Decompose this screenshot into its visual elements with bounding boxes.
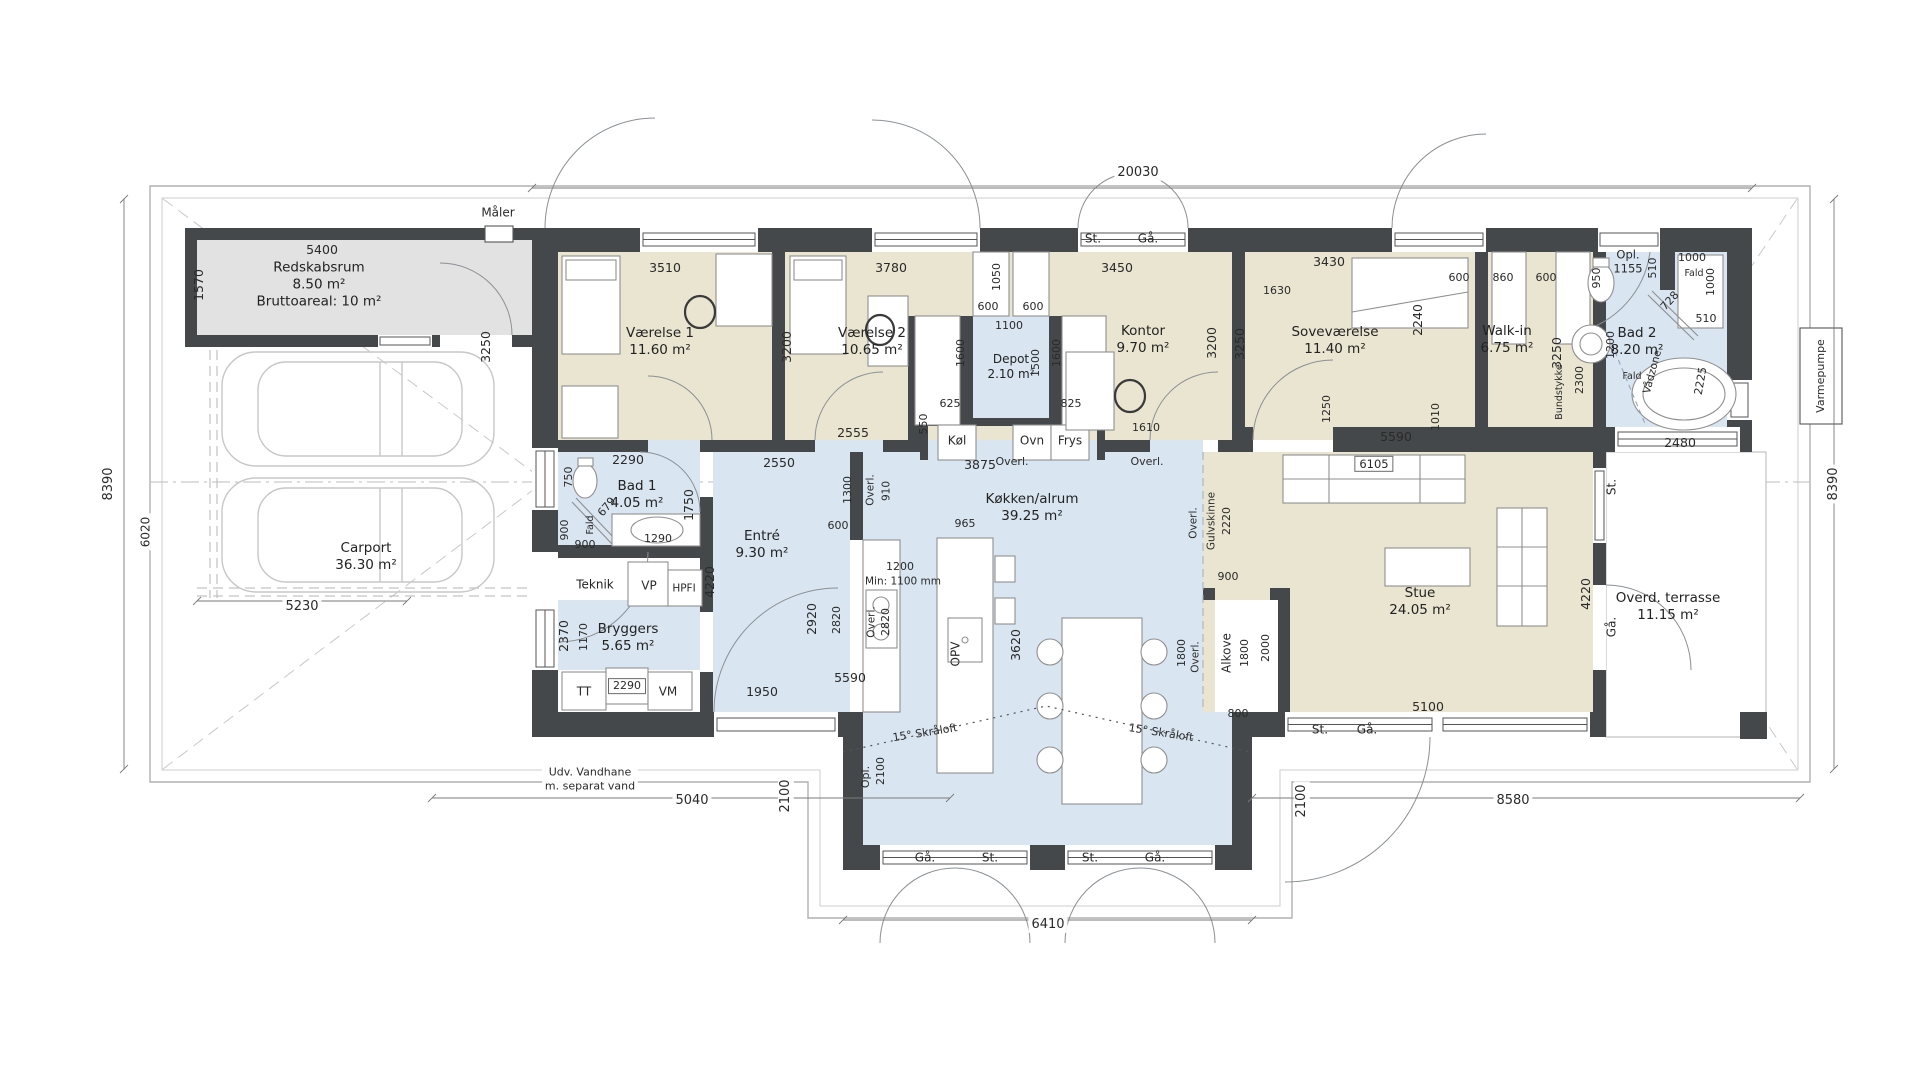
label-fald: Fald: [585, 515, 597, 534]
label-1170: 1170: [577, 623, 591, 651]
label-2220: 2220: [1220, 507, 1234, 535]
label-900: 900: [558, 520, 572, 541]
label-hpfi: HPFI: [672, 582, 695, 595]
label-825: 825: [1061, 397, 1082, 411]
label-overd-terrasse: Overd. terrasse 11.15 m²: [1616, 590, 1721, 624]
label-625: 625: [940, 397, 961, 411]
label-soveværelse: Soveværelse 11.40 m²: [1291, 324, 1378, 358]
label-2300: 2300: [1573, 366, 1587, 394]
label-3780: 3780: [875, 260, 907, 276]
label-5590: 5590: [1380, 429, 1412, 445]
label-600: 600: [978, 300, 999, 314]
label-950: 950: [1590, 268, 1604, 289]
label-opv: OPV: [949, 642, 964, 667]
label-fald: Fald: [1622, 371, 1641, 383]
label-overl-: Overl.: [995, 455, 1028, 469]
label-opl-: Opl. 1155: [1613, 248, 1642, 277]
label-1800: 1800: [1175, 639, 1189, 667]
label-opl-: Opl.: [859, 766, 873, 788]
label-3250: 3250: [1232, 328, 1248, 360]
label-depot: Depot 2.10 m²: [987, 352, 1034, 382]
label-4220: 4220: [702, 566, 718, 598]
label-1200: 1200: [886, 560, 914, 574]
label-redskabsrum: Redskabsrum 8.50 m² Bruttoareal: 10 m²: [257, 260, 382, 311]
label-1050: 1050: [990, 263, 1004, 291]
label-frys: Frys: [1058, 434, 1082, 449]
label-1200: 1200: [1604, 331, 1618, 359]
label-600: 600: [1023, 300, 1044, 314]
label-510: 510: [1646, 258, 1660, 279]
label-gå-: Gå.: [1138, 232, 1158, 247]
label-1000: 1000: [1678, 251, 1706, 265]
label-værelse-2: Værelse 2 10.65 m²: [838, 325, 906, 359]
label-5040: 5040: [672, 793, 711, 809]
label-2820: 2820: [830, 606, 844, 634]
label-gå-: Gå.: [1357, 723, 1377, 738]
label-1010: 1010: [1429, 403, 1443, 431]
label-køl: Køl: [948, 434, 967, 449]
label-overl-: Overl.: [864, 474, 877, 506]
label-5590: 5590: [834, 670, 866, 686]
label-8390: 8390: [1826, 464, 1842, 503]
label-overl-: Overl.: [865, 606, 878, 638]
label-2820: 2820: [879, 608, 893, 636]
label-ovn: Ovn: [1020, 434, 1044, 449]
label-2100: 2100: [1294, 781, 1310, 820]
label-3250: 3250: [478, 331, 494, 363]
label-3450: 3450: [1101, 260, 1133, 276]
label-teknik: Teknik: [576, 578, 614, 593]
label-800: 800: [1228, 707, 1249, 721]
label-overl-: Overl.: [1189, 641, 1202, 673]
label-600: 600: [1449, 271, 1470, 285]
label-3200: 3200: [1204, 327, 1220, 359]
label-bryggers: Bryggers 5.65 m²: [598, 621, 659, 655]
label-stue: Stue 24.05 m²: [1389, 585, 1451, 619]
label-overl-: Overl.: [1187, 507, 1200, 539]
label-1610: 1610: [1132, 421, 1160, 435]
label-1100: 1100: [995, 319, 1023, 333]
label-carport: Carport 36.30 m²: [335, 540, 397, 574]
label-1500: 1500: [1029, 349, 1043, 377]
label-2290: 2290: [612, 452, 644, 468]
label-tt: TT: [577, 685, 591, 700]
label-6105: 6105: [1354, 456, 1393, 472]
label-2240: 2240: [1410, 304, 1426, 336]
label-3510: 3510: [649, 260, 681, 276]
label-fald: Fald: [1684, 268, 1703, 280]
label-965: 965: [955, 517, 976, 531]
label-8390: 8390: [101, 464, 117, 503]
label-1800: 1800: [1238, 639, 1252, 667]
label-gulvskinne: Gulvskinne: [1205, 492, 1218, 550]
label-15°-skråloft: 15° Skråloft: [892, 721, 959, 745]
label-2100: 2100: [874, 757, 888, 785]
label-st-: St.: [982, 851, 998, 866]
label-1950: 1950: [746, 684, 778, 700]
label-1600: 1600: [1050, 339, 1064, 367]
label-2555: 2555: [837, 425, 869, 441]
label-bad-1: Bad 1 4.05 m²: [611, 478, 664, 512]
label-900: 900: [575, 538, 596, 552]
label-gå-: Gå.: [1605, 617, 1620, 637]
floorplan-canvas: Redskabsrum 8.50 m² Bruttoareal: 10 m²Ca…: [0, 0, 1920, 1080]
label-6410: 6410: [1028, 917, 1067, 933]
label-3430: 3430: [1313, 254, 1345, 270]
label-3200: 3200: [779, 331, 795, 363]
label-1630: 1630: [1263, 284, 1291, 298]
label-walk-in: Walk-in 6.75 m²: [1481, 323, 1534, 357]
label-2290: 2290: [608, 678, 646, 694]
label-910: 910: [880, 481, 893, 501]
label-1000: 1000: [1704, 268, 1718, 296]
label-vp: VP: [641, 579, 656, 594]
label-1600: 1600: [954, 339, 968, 367]
label-min-1100-mm: Min: 1100 mm: [865, 575, 941, 588]
label-860: 860: [1493, 271, 1514, 285]
label-værelse-1: Værelse 1 11.60 m²: [626, 325, 694, 359]
label-2480: 2480: [1664, 435, 1696, 451]
label-3875: 3875: [964, 457, 996, 473]
label-vm: VM: [659, 685, 678, 700]
label-15°-skråloft: 15° Skråloft: [1128, 721, 1195, 745]
label-entré: Entré 9.30 m²: [736, 528, 789, 562]
label-varmepumpe: Varmepumpe: [1814, 336, 1828, 416]
label-bundstykke: Bundstykke: [1554, 364, 1566, 419]
label-600: 600: [1536, 271, 1557, 285]
label-udv-vandhane: Udv. Vandhane m. separat vand: [542, 765, 638, 793]
label-3620: 3620: [1008, 629, 1024, 661]
label-st-: St.: [1085, 232, 1101, 247]
label-måler: Måler: [478, 206, 517, 221]
label-overl-: Overl.: [1130, 455, 1163, 469]
label-5100: 5100: [1412, 699, 1444, 715]
label-gå-: Gå.: [915, 851, 935, 866]
label-1570: 1570: [191, 269, 207, 301]
label-900: 900: [1218, 570, 1239, 584]
label-2000: 2000: [1259, 634, 1273, 662]
label-1290: 1290: [644, 532, 672, 546]
label-5400: 5400: [306, 242, 338, 258]
label-1250: 1250: [1320, 395, 1334, 423]
label-st-: St.: [1312, 723, 1328, 738]
label-2100: 2100: [778, 776, 794, 815]
label-2225: 2225: [1692, 366, 1710, 396]
label-1300: 1300: [841, 476, 855, 504]
label-layer: Redskabsrum 8.50 m² Bruttoareal: 10 m²Ca…: [0, 0, 1920, 1080]
label-gå-: Gå.: [1145, 851, 1165, 866]
label-2920: 2920: [804, 603, 820, 635]
label-510: 510: [1696, 312, 1717, 326]
label-600: 600: [828, 519, 849, 533]
label-8580: 8580: [1493, 793, 1532, 809]
label-alkove: Alkove: [1220, 633, 1235, 673]
label-2370: 2370: [556, 620, 572, 652]
label-st-: St.: [1605, 479, 1620, 495]
label-728: 728: [1658, 289, 1682, 314]
label-1750: 1750: [681, 489, 697, 521]
label-kontor: Kontor 9.70 m²: [1117, 323, 1170, 357]
label-st-: St.: [1082, 851, 1098, 866]
label-5230: 5230: [282, 599, 321, 615]
label-4220: 4220: [1578, 578, 1594, 610]
label-6020: 6020: [139, 514, 154, 551]
label-køkken-alrum: Køkken/alrum 39.25 m²: [986, 491, 1079, 525]
label-750: 750: [562, 467, 576, 488]
label-550: 550: [917, 414, 931, 435]
label-20030: 20030: [1114, 165, 1161, 181]
label-2550: 2550: [763, 455, 795, 471]
